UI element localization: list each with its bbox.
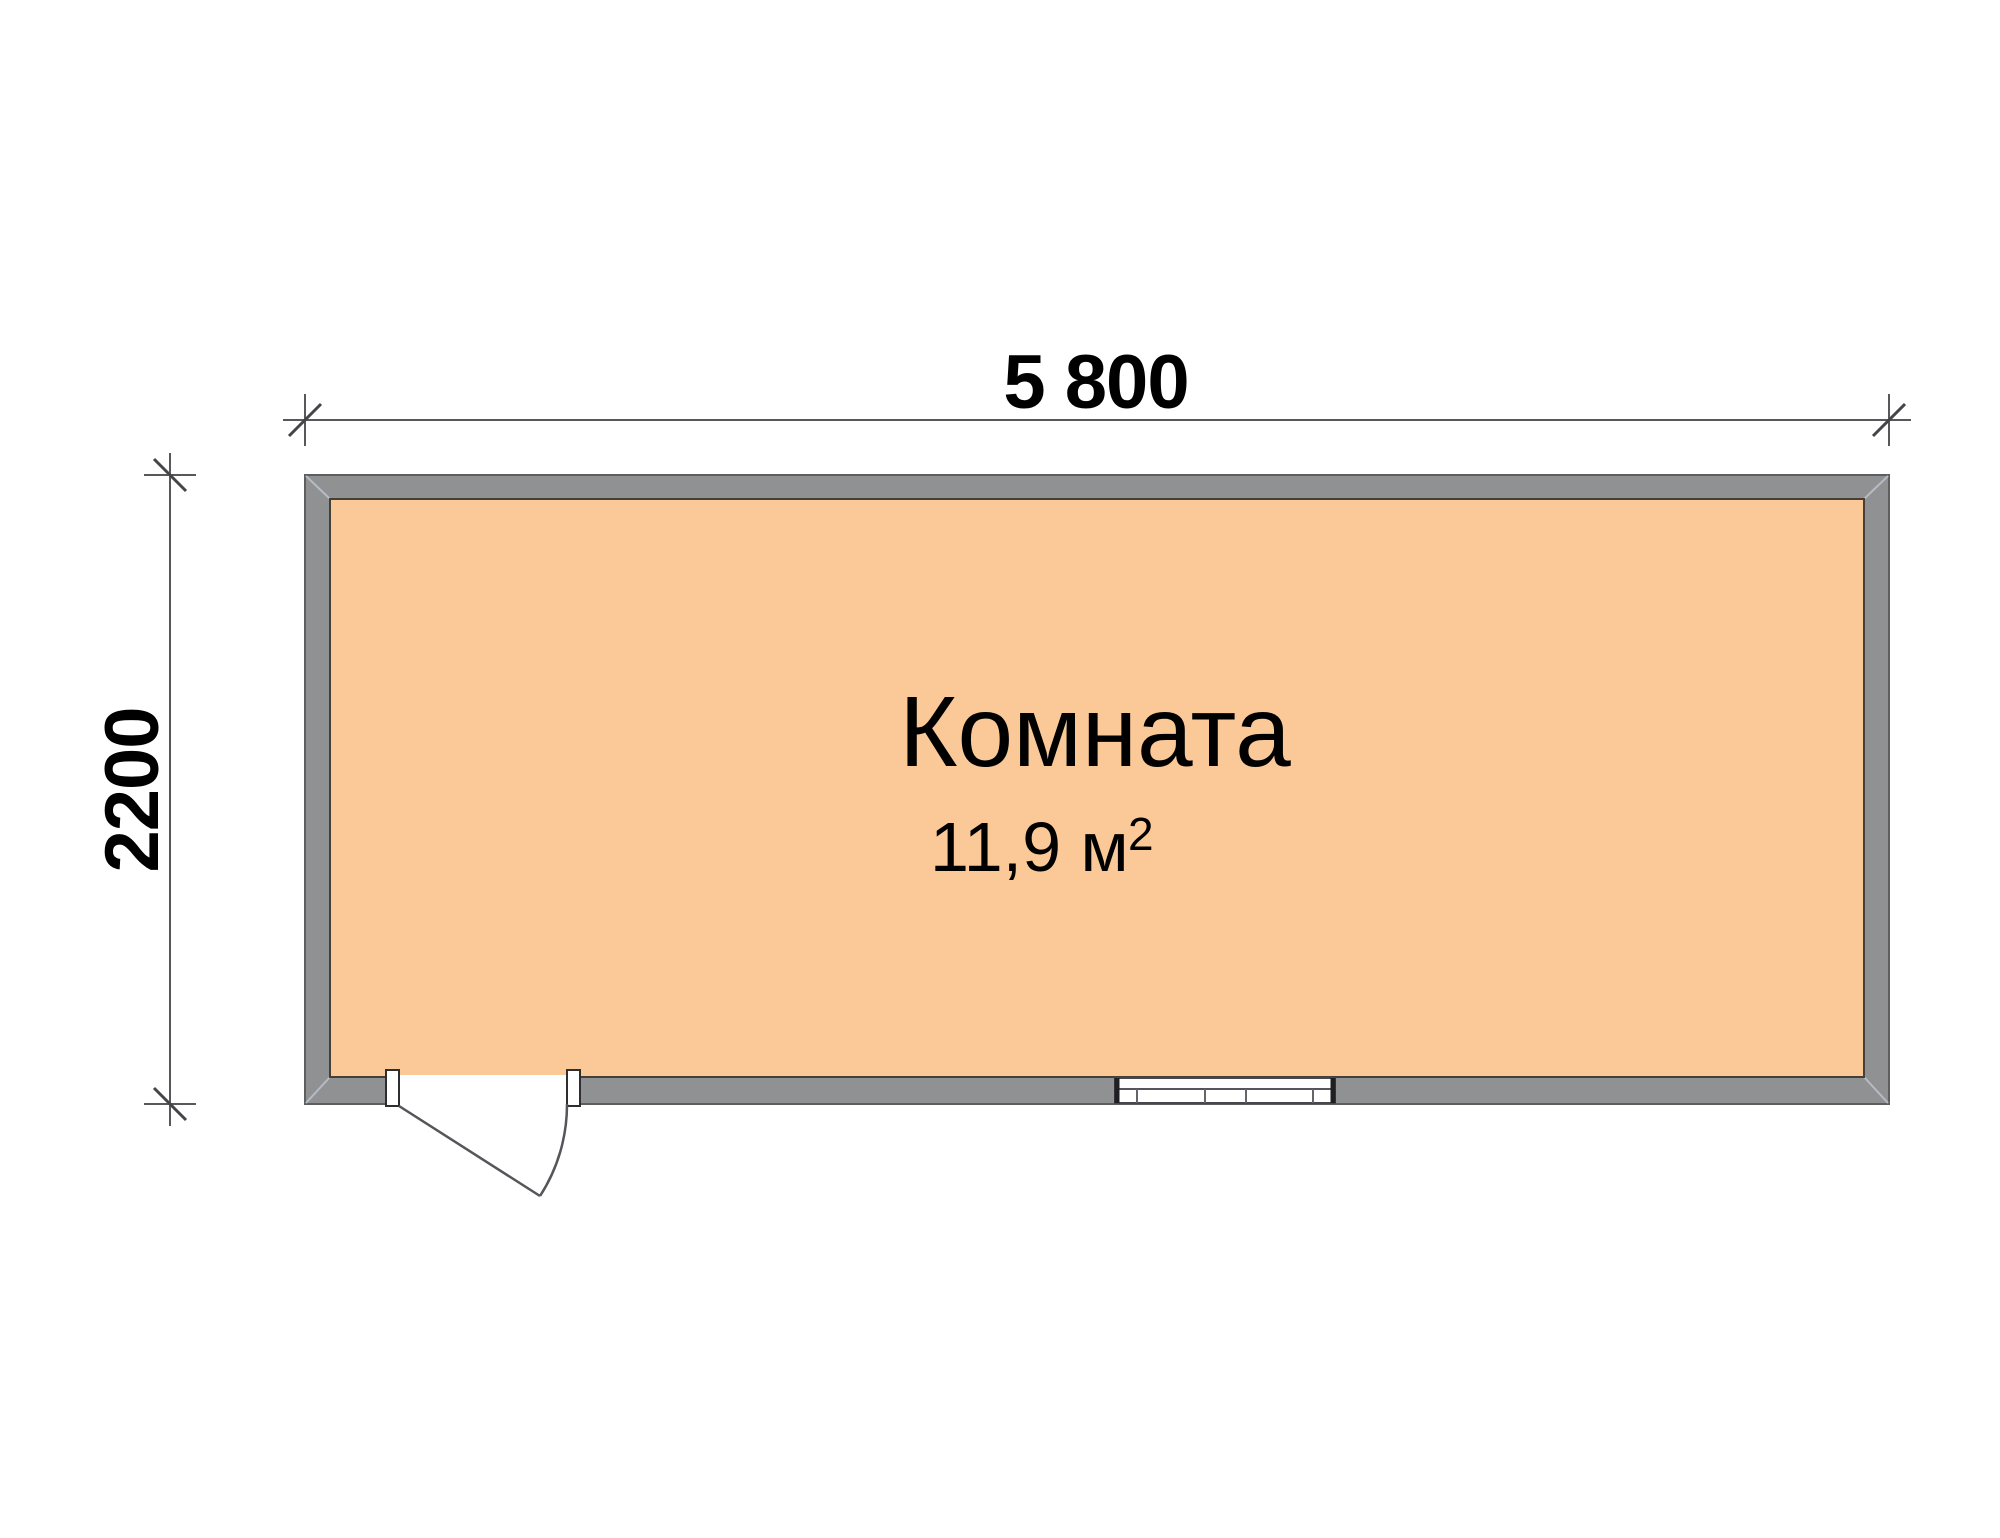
height-dimension-label: 2200: [90, 707, 175, 872]
room-name-label: Комната: [899, 676, 1291, 788]
building-outline: [305, 475, 1889, 1104]
floor-plan-canvas: 5 800 2200 Комната 11,9 м 2: [0, 0, 2000, 1538]
door-swing-arc: [540, 1104, 567, 1196]
door-leaf: [399, 1106, 540, 1196]
dimension-top: 5 800: [283, 340, 1911, 446]
width-dimension-label: 5 800: [1003, 340, 1188, 425]
door-opening: [397, 1075, 569, 1108]
room-area-label: 11,9 м: [930, 808, 1129, 886]
room-area-superscript: 2: [1128, 808, 1154, 860]
door-jamb-right: [567, 1070, 580, 1106]
door: [386, 1070, 580, 1196]
room-floor: [330, 499, 1864, 1077]
floor-plan-page: 5 800 2200 Комната 11,9 м 2: [0, 0, 2000, 1538]
dimension-left: 2200: [90, 453, 196, 1126]
door-jamb-left: [386, 1070, 399, 1106]
window-frame: [1115, 1078, 1335, 1103]
window: [1115, 1078, 1335, 1103]
